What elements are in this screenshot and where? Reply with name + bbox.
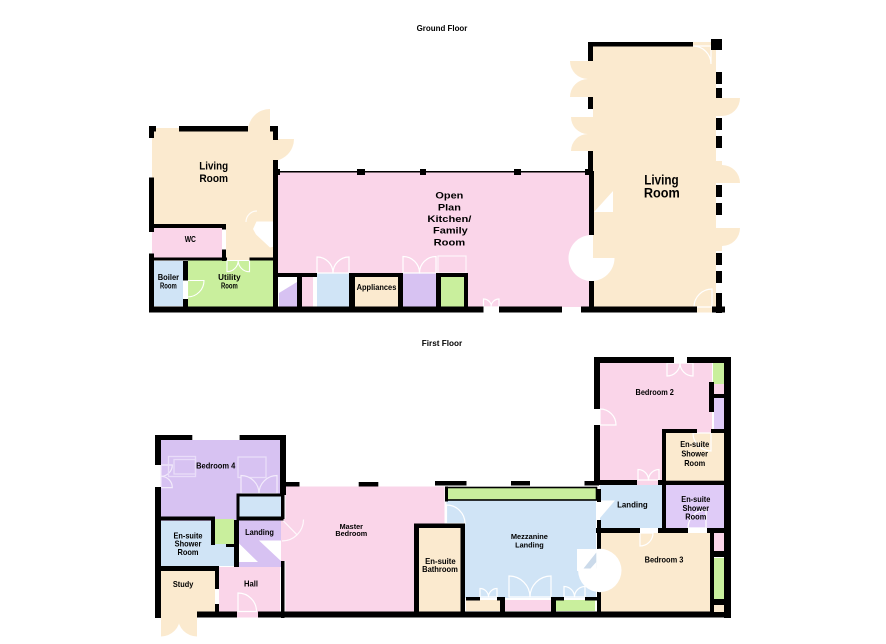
svg-text:First Floor: First Floor (422, 338, 463, 348)
svg-text:En-suite: En-suite (681, 495, 710, 504)
svg-text:Ground Floor: Ground Floor (417, 23, 468, 33)
svg-text:Landing: Landing (245, 528, 274, 537)
svg-text:Open: Open (435, 191, 463, 202)
svg-text:Room: Room (684, 459, 705, 468)
svg-text:Room: Room (178, 548, 199, 557)
svg-text:Hall: Hall (244, 579, 258, 588)
svg-text:Landing: Landing (515, 540, 544, 549)
svg-text:Room: Room (199, 173, 228, 185)
svg-text:Living: Living (199, 160, 228, 172)
svg-text:Room: Room (685, 513, 706, 522)
svg-text:Shower: Shower (681, 450, 708, 459)
svg-text:Room: Room (160, 282, 177, 291)
svg-text:Bedroom 2: Bedroom 2 (636, 388, 675, 397)
svg-text:Plan: Plan (438, 202, 461, 213)
svg-text:Shower: Shower (682, 504, 709, 513)
svg-text:Room: Room (644, 186, 680, 202)
svg-text:Bedroom: Bedroom (335, 529, 367, 538)
svg-text:En-suite: En-suite (680, 440, 709, 449)
svg-text:Room: Room (434, 237, 466, 248)
svg-text:WC: WC (185, 235, 196, 244)
svg-text:Landing: Landing (617, 501, 648, 510)
svg-text:Kitchen/: Kitchen/ (427, 214, 471, 225)
svg-text:Bedroom 3: Bedroom 3 (645, 555, 684, 564)
svg-text:Appliances: Appliances (357, 283, 397, 292)
svg-text:Bathroom: Bathroom (422, 565, 458, 574)
svg-text:Family: Family (433, 226, 469, 237)
svg-text:Bedroom 4: Bedroom 4 (196, 462, 236, 471)
svg-text:Room: Room (221, 282, 238, 291)
svg-text:Study: Study (173, 580, 194, 589)
